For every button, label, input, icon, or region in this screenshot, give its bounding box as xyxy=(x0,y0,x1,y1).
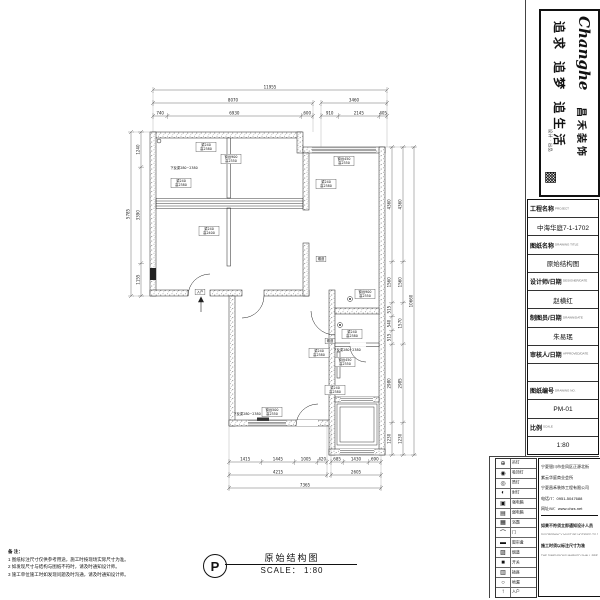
legend-symbol-icon: ↑ xyxy=(496,588,511,597)
legend-row: ◎筒灯 xyxy=(496,479,536,489)
svg-text:高2400: 高2400 xyxy=(203,230,215,235)
legend-symbol-icon: ⊕ xyxy=(496,459,511,468)
svg-text:2605: 2605 xyxy=(351,470,362,475)
legend-label: 地漏 xyxy=(511,578,536,587)
dimension-labels: 1195580703460740693060091021454055785124… xyxy=(126,85,414,488)
legend-table: ⊕吊灯◉吸顶灯◎筒灯◐射灯▣强电箱▤弱电箱▦浴霸⌒门▬窗帘盒▨烟道■开关▥插座○… xyxy=(495,458,537,598)
company-address: 宁夏银川市金凤区正源北街紫云华庭商业会所宁夏昌禾装饰工程有限公司电话/T：095… xyxy=(541,460,598,513)
svg-text:515: 515 xyxy=(387,333,392,341)
note-item: 2 如发现尺寸与结构与图纸不符时，请及时通知设计师。 xyxy=(8,561,193,569)
title-block-value: 赵横红 xyxy=(553,295,573,305)
svg-text:1570: 1570 xyxy=(398,318,403,329)
legend-symbol-icon: ▥ xyxy=(496,568,511,577)
legend-label: 窗帘盒 xyxy=(511,538,536,547)
legend-symbol-icon: ▤ xyxy=(496,509,511,518)
svg-text:高2350: 高2350 xyxy=(266,411,278,416)
divider xyxy=(541,515,598,516)
legend-label: 门 xyxy=(511,528,536,537)
svg-text:下反梁280~2380: 下反梁280~2380 xyxy=(233,411,260,416)
title-block-row xyxy=(528,364,598,382)
legend-row: ⊕吊灯 xyxy=(496,459,536,469)
svg-text:5785: 5785 xyxy=(126,208,131,219)
title-block-row: 比例SCALE xyxy=(528,419,598,437)
title-block-row: 赵横红 xyxy=(528,291,598,309)
title-block-row: 1:80 xyxy=(528,437,598,454)
legend-row: ▬窗帘盒 xyxy=(496,538,536,548)
svg-text:高2380: 高2380 xyxy=(313,352,325,357)
panel-divider xyxy=(525,0,526,456)
svg-text:1415: 1415 xyxy=(240,457,251,462)
svg-text:高2350: 高2350 xyxy=(225,158,237,163)
legend-symbol-icon: ◎ xyxy=(496,479,511,488)
drawing-scale: SCALE： 1:80 xyxy=(231,565,353,576)
bottom-right-region: ⊕吊灯◉吸顶灯◎筒灯◐射灯▣强电箱▤弱电箱▦浴霸⌒门▬窗帘盒▨烟道■开关▥插座○… xyxy=(489,456,599,598)
svg-text:1240: 1240 xyxy=(136,144,141,155)
legend-label: 烟道 xyxy=(511,548,536,557)
svg-text:515: 515 xyxy=(387,305,392,313)
svg-text:4360: 4360 xyxy=(398,199,403,210)
legend-symbol-icon: ◐ xyxy=(496,489,511,498)
svg-text:600: 600 xyxy=(303,111,311,116)
title-block-value: 朱易珉 xyxy=(553,331,573,341)
svg-text:11955: 11955 xyxy=(264,85,277,90)
title-block-value: 中海华庭7-1-1702 xyxy=(537,222,589,232)
svg-text:6930: 6930 xyxy=(229,111,240,116)
title-block-label-en: DRAWING NO. xyxy=(555,389,576,393)
svg-text:685: 685 xyxy=(333,457,341,462)
title-block-row: 工程名称PROJECT xyxy=(528,200,598,218)
legend-label: 射灯 xyxy=(511,489,536,498)
legend-symbol-icon: ○ xyxy=(496,578,511,587)
legend-label: 入户 xyxy=(511,588,536,597)
title-block-label-en: SCALE xyxy=(543,425,553,429)
legend-symbol-icon: ▬ xyxy=(496,538,511,547)
svg-text:高2350: 高2350 xyxy=(359,293,371,298)
svg-text:4360: 4360 xyxy=(387,199,392,210)
logo-box: Changhe 昌禾装饰 追求 追梦 追生活 设计 · 出品 ▩ xyxy=(539,9,600,197)
svg-text:3390: 3390 xyxy=(136,210,141,221)
drawing-title: 原始结构图 xyxy=(231,551,353,564)
title-block-label-en: DRAWN/DATE xyxy=(563,316,583,320)
svg-text:10660: 10660 xyxy=(409,294,414,307)
company-address-line: 网址/W：www.chzs.net xyxy=(541,502,598,513)
svg-text:高2350: 高2350 xyxy=(339,361,351,366)
company-notice: 如果不符须立即通知设计人员DISCREPANCY MUST BE NOTIFIE… xyxy=(541,519,598,536)
svg-text:7365: 7365 xyxy=(300,483,311,488)
legend-label: 强电箱 xyxy=(511,499,536,508)
svg-text:烟道: 烟道 xyxy=(318,256,325,261)
title-block-row: 图纸编号DRAWING NO. xyxy=(528,382,598,400)
legend-symbol-icon: ◉ xyxy=(496,469,511,478)
title-block-label: 工程名称 xyxy=(530,204,554,213)
column-block xyxy=(150,268,156,280)
qr-code-icon: ▩ xyxy=(544,169,557,183)
legend-symbol-icon: ▨ xyxy=(496,548,511,557)
title-block-label: 图纸名称 xyxy=(530,241,554,250)
legend-row: ▦浴霸 xyxy=(496,519,536,529)
svg-text:690: 690 xyxy=(371,457,379,462)
legend-row: ⌒门 xyxy=(496,528,536,538)
title-block-value: PM-01 xyxy=(553,406,572,413)
svg-text:高2380: 高2380 xyxy=(329,389,341,394)
note-item: 1 图纸标注尺寸仅供参考用途，施工时按现场实际尺寸为准。 xyxy=(8,554,193,562)
detail-marker: P xyxy=(203,554,227,578)
svg-text:405: 405 xyxy=(379,111,387,116)
title-block-value: 1:80 xyxy=(557,442,570,449)
legend-row: ▤弱电箱 xyxy=(496,509,536,519)
legend-row: ▥插座 xyxy=(496,568,536,578)
legend-row: ◐射灯 xyxy=(496,489,536,499)
title-block-row: PM-01 xyxy=(528,400,598,418)
svg-text:1005: 1005 xyxy=(301,457,312,462)
title-block-value: 原始结构图 xyxy=(547,258,580,268)
company-notice: 施工时须以标注尺寸为准THE DIMENSIONS MARKED SHALL P… xyxy=(541,539,598,556)
title-block-label-en: DRAWING TITLE xyxy=(555,243,578,247)
legend-row: ■开关 xyxy=(496,558,536,568)
legend-label: 吊灯 xyxy=(511,459,536,468)
svg-text:740: 740 xyxy=(156,111,164,116)
svg-text:2145: 2145 xyxy=(354,111,365,116)
svg-text:下反梁280~2380: 下反梁280~2380 xyxy=(333,347,360,352)
title-block-row: 审核人/日期APPROVED/DATE xyxy=(528,346,598,364)
plan-annotations: 梁240高2380窗台900高2350窗台450高2350梁240高2380梁2… xyxy=(170,142,375,417)
brand-name-cn: 昌禾装饰 xyxy=(575,107,590,159)
legend-label: 浴霸 xyxy=(511,519,536,528)
title-block-row: 原始结构图 xyxy=(528,255,598,273)
svg-text:高2380: 高2380 xyxy=(200,146,212,151)
title-block-row: 中海华庭7-1-1702 xyxy=(528,218,598,236)
svg-text:910: 910 xyxy=(326,111,334,116)
svg-text:1430: 1430 xyxy=(351,457,362,462)
title-block-label-en: APPROVED/DATE xyxy=(563,352,588,356)
legend-label: 吸顶灯 xyxy=(511,469,536,478)
svg-text:4215: 4215 xyxy=(273,470,284,475)
legend-row: ▣强电箱 xyxy=(496,499,536,509)
legend-symbol-icon: ▣ xyxy=(496,499,511,508)
svg-text:540: 540 xyxy=(387,319,392,327)
svg-text:1560: 1560 xyxy=(398,277,403,288)
title-block-row: 图纸名称DRAWING TITLE xyxy=(528,236,598,254)
svg-text:高2380: 高2380 xyxy=(346,333,358,338)
svg-text:入户: 入户 xyxy=(197,289,204,294)
drawing-sheet: { "logo": { "brand": "Changhe", "brand_c… xyxy=(0,0,600,600)
title-block-label-en: PROJECT xyxy=(555,207,569,211)
title-block-label: 比例 xyxy=(530,423,542,432)
legend-symbol-icon: ⌒ xyxy=(496,528,511,537)
svg-text:1230: 1230 xyxy=(398,433,403,444)
entry-arrow-icon xyxy=(199,297,204,312)
brand-slogan: 追求 追梦 追生活 xyxy=(551,21,568,149)
legend-label: 筒灯 xyxy=(511,479,536,488)
company-address-line: 紫云华庭商业会所 xyxy=(541,471,598,482)
company-address-line: 电话/T：0951-5047688 xyxy=(541,492,598,503)
svg-text:高2380: 高2380 xyxy=(175,182,187,187)
svg-text:420: 420 xyxy=(318,457,326,462)
svg-text:1445: 1445 xyxy=(273,457,284,462)
notes-title: 备 注： xyxy=(8,549,23,554)
brand-seal-text: 设计 · 出品 xyxy=(548,129,554,152)
title-block: 工程名称PROJECT中海华庭7-1-1702图纸名称DRAWING TITLE… xyxy=(527,199,599,455)
legend-label: 插座 xyxy=(511,568,536,577)
svg-text:1560: 1560 xyxy=(387,277,392,288)
legend-symbol-icon: ▦ xyxy=(496,519,511,528)
note-item: 3 施工单位施工时如发现问题及时沟通，请及时通知设计师。 xyxy=(8,569,193,577)
company-address-line: 宁夏银川市金凤区正源北街 xyxy=(541,460,598,471)
legend-row: ○地漏 xyxy=(496,578,536,588)
svg-text:1230: 1230 xyxy=(387,433,392,444)
notes-block: 备 注： 1 图纸标注尺寸仅供参考用途，施工时按现场实际尺寸为准。2 如发现尺寸… xyxy=(8,546,193,576)
title-block-label: 审核人/日期 xyxy=(530,350,562,359)
legend-label: 弱电箱 xyxy=(511,509,536,518)
company-info-box: 宁夏银川市金凤区正源北街紫云华庭商业会所宁夏昌禾装饰工程有限公司电话/T：095… xyxy=(538,458,600,597)
company-notices: 如果不符须立即通知设计人员DISCREPANCY MUST BE NOTIFIE… xyxy=(541,519,598,556)
brand-logo-text: Changhe xyxy=(575,16,593,90)
svg-text:2985: 2985 xyxy=(398,378,403,389)
legend-label: 开关 xyxy=(511,558,536,567)
title-block-label-en: DESIGNER/DATE xyxy=(563,279,587,283)
svg-text:高2380: 高2380 xyxy=(320,183,332,188)
svg-text:2980: 2980 xyxy=(387,378,392,389)
svg-text:8070: 8070 xyxy=(228,98,239,103)
title-block-label: 设计师/日期 xyxy=(530,277,562,286)
company-address-line: 宁夏昌禾装饰工程有限公司 xyxy=(541,481,598,492)
svg-text:下反梁280~2380: 下反梁280~2380 xyxy=(170,165,197,170)
legend-symbol-icon: ■ xyxy=(496,558,511,567)
title-block-row: 设计师/日期DESIGNER/DATE xyxy=(528,273,598,291)
title-block-label: 制图员/日期 xyxy=(530,313,562,322)
title-block-row: 制图员/日期DRAWN/DATE xyxy=(528,309,598,327)
legend-row: ↑入户 xyxy=(496,588,536,597)
legend-row: ▨烟道 xyxy=(496,548,536,558)
title-block-row: 朱易珉 xyxy=(528,328,598,346)
svg-text:烟道: 烟道 xyxy=(327,338,334,343)
title-block-label: 图纸编号 xyxy=(530,386,554,395)
legend-row: ◉吸顶灯 xyxy=(496,469,536,479)
svg-text:高2350: 高2350 xyxy=(338,160,350,165)
plan-title-group: P 原始结构图 SCALE： 1:80 xyxy=(195,550,370,584)
notes-items: 1 图纸标注尺寸仅供参考用途，施工时按现场实际尺寸为准。2 如发现尺寸与结构与图… xyxy=(8,554,193,577)
svg-text:3460: 3460 xyxy=(349,98,360,103)
svg-text:1155: 1155 xyxy=(136,274,141,285)
